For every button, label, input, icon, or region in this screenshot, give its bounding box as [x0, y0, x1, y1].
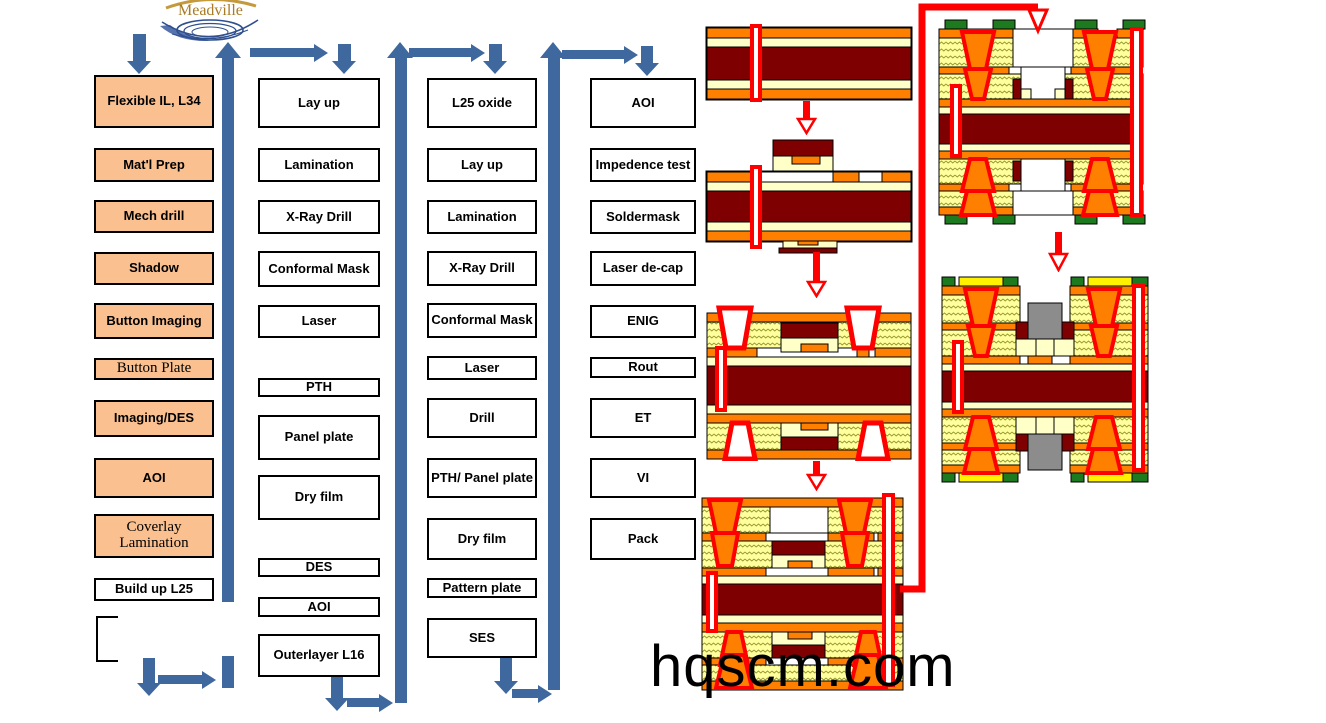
arrow-into-col2-shaft — [338, 44, 351, 61]
arrow-into-col4-head — [635, 63, 659, 76]
box-pack: Pack — [590, 518, 696, 560]
box-aoi-col1: AOI — [94, 458, 214, 498]
box-pth: PTH — [258, 378, 380, 397]
box-build-up-l25: Build up L25 — [94, 578, 214, 601]
box-drill: Drill — [427, 398, 537, 438]
col3-bottom-right-shaft — [512, 689, 538, 698]
box-lay-up-col3: Lay up — [427, 148, 537, 182]
red-connector-d-to-e — [898, 0, 1063, 600]
meadville-logo-text: Meadville — [178, 2, 243, 20]
box-aoi-col4: AOI — [590, 78, 696, 128]
col1-bottom-right-shaft — [158, 675, 202, 684]
box-panel-plate: Panel plate — [258, 415, 380, 460]
cross-section-inner-pattern — [705, 138, 913, 254]
col1-bottom-right-head — [202, 671, 216, 689]
col2-bottom-right-head — [379, 694, 393, 712]
box-enig: ENIG — [590, 305, 696, 338]
col1-bottom-down-shaft — [143, 658, 155, 683]
connector-col2-col3-shaft — [409, 48, 471, 57]
box-soldermask: Soldermask — [590, 200, 696, 234]
box-mech-drill: Mech drill — [94, 200, 214, 233]
col2-bottom-down-shaft — [331, 677, 343, 698]
box-vi: VI — [590, 458, 696, 498]
box-lamination-col2: Lamination — [258, 148, 380, 182]
box-impedence-test: Impedence test — [590, 148, 696, 182]
box-dry-film-col2: Dry film — [258, 475, 380, 520]
arrow-into-col3-head — [483, 61, 507, 74]
box-conformal-mask-col2: Conformal Mask — [258, 251, 380, 287]
connector-col3-col4-shaft — [562, 50, 624, 59]
box-flexible-il-l34: Flexible IL, L34 — [94, 75, 214, 128]
box-pth-panel-plate: PTH/ Panel plate — [427, 458, 537, 498]
box-lamination-col3: Lamination — [427, 200, 537, 234]
box-laser-de-cap: Laser de-cap — [590, 251, 696, 286]
connector-col2-col3-head — [471, 44, 485, 62]
box-dry-film-col3: Dry film — [427, 518, 537, 560]
connector-col1-col2-head — [314, 44, 328, 62]
col1-return-bar — [222, 58, 234, 602]
box-button-plate: Button Plate — [94, 358, 214, 380]
box-imaging-des: Imaging/DES — [94, 400, 214, 437]
box-lay-up-col2: Lay up — [258, 78, 380, 128]
box-pattern-plate: Pattern plate — [427, 578, 537, 598]
box-laser-col2: Laser — [258, 305, 380, 338]
red-arrow-b-to-c — [806, 252, 827, 298]
box-rout: Rout — [590, 357, 696, 378]
arrow-logo-to-col1-shaft — [133, 34, 146, 61]
arrow-into-col4-shaft — [641, 46, 653, 63]
box-ses: SES — [427, 618, 537, 658]
box-button-imaging: Button Imaging — [94, 303, 214, 339]
col1-bottom-down-head — [137, 683, 161, 696]
red-arrow-a-to-b — [796, 101, 817, 135]
pcb-process-flow-diagram: Meadville Flexible IL, L34 Mat'l Prep Me… — [0, 0, 1326, 723]
box-conformal-mask-col3: Conformal Mask — [427, 303, 537, 338]
box-shadow: Shadow — [94, 252, 214, 285]
connector-col1-col2-shaft — [250, 48, 314, 57]
watermark-text: hqscm.com — [650, 638, 956, 696]
box-et: ET — [590, 398, 696, 438]
col1-bottom-bracket — [96, 616, 118, 662]
col2-bottom-down-head — [325, 698, 349, 711]
box-l25-oxide: L25 oxide — [427, 78, 537, 128]
connector-col3-col4-head — [624, 46, 638, 64]
col1-return-bar-uphead — [215, 42, 241, 58]
box-matl-prep: Mat'l Prep — [94, 148, 214, 182]
box-laser-col3: Laser — [427, 356, 537, 380]
cross-section-laser-via-build-up — [705, 299, 913, 461]
box-aoi-col2: AOI — [258, 597, 380, 617]
col2-bottom-right-shaft — [347, 698, 379, 707]
col1-return-bar-stub — [222, 656, 234, 688]
box-xray-drill-col3: X-Ray Drill — [427, 251, 537, 286]
box-xray-drill-col2: X-Ray Drill — [258, 200, 380, 234]
arrow-into-col2-head — [332, 61, 356, 74]
col3-bottom-down-shaft — [500, 658, 512, 681]
col3-bottom-right-head — [538, 685, 552, 703]
box-des: DES — [258, 558, 380, 577]
arrow-logo-to-col1-head — [127, 61, 151, 74]
box-outerlayer-l16: Outerlayer L16 — [258, 634, 380, 677]
box-coverlay-lamination: Coverlay Lamination — [94, 514, 214, 558]
cross-section-core-laminate — [705, 24, 913, 102]
arrow-into-col3-shaft — [489, 44, 502, 61]
col2-return-bar — [395, 58, 407, 703]
col3-return-bar — [548, 58, 560, 690]
